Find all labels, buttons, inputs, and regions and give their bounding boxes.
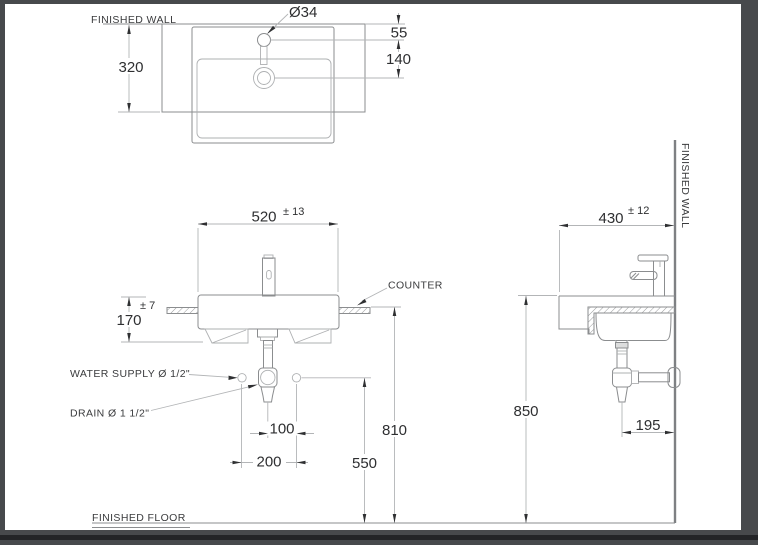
- dim-195: 195: [635, 417, 660, 434]
- dim-320: 320: [118, 59, 143, 76]
- finished-wall-label-side: FINISHED WALL: [679, 143, 691, 228]
- finished-floor-label: FINISHED FLOOR: [92, 512, 186, 524]
- counter-label: COUNTER: [388, 280, 443, 292]
- dim-850: 850: [513, 403, 538, 420]
- water-supply-label: WATER SUPPLY Ø 1/2": [70, 368, 190, 380]
- dim-430: 430: [598, 210, 623, 227]
- dim-faucet-dia: Ø34: [289, 4, 317, 21]
- dim-55: 55: [391, 25, 408, 42]
- finished-wall-label-plan: FINISHED WALL: [91, 14, 176, 26]
- dim-520: 520: [251, 209, 276, 226]
- counter-left-front: [167, 308, 198, 314]
- basin-installation-drawing: 320 Ø34 55 140 FINISHED WALL 520 ± 13: [0, 0, 758, 540]
- drain-flange-side: [616, 343, 629, 349]
- frame-bottom-edge: [0, 535, 758, 540]
- dim-100: 100: [269, 421, 294, 438]
- dim-140: 140: [386, 51, 411, 68]
- dim-200: 200: [256, 454, 281, 471]
- dim-550: 550: [352, 455, 377, 472]
- drawing-sheet: 320 Ø34 55 140 FINISHED WALL 520 ± 13: [0, 0, 758, 545]
- dim-810: 810: [382, 422, 407, 439]
- drain-label: DRAIN Ø 1 1/2": [70, 408, 149, 420]
- dim-520-tol: ± 13: [283, 206, 304, 218]
- counter-right-front: [339, 308, 370, 314]
- dim-170: 170: [116, 312, 141, 329]
- dim-170-tol: ± 7: [140, 300, 155, 312]
- paper: [5, 4, 741, 530]
- dim-430-tol: ± 12: [628, 205, 649, 217]
